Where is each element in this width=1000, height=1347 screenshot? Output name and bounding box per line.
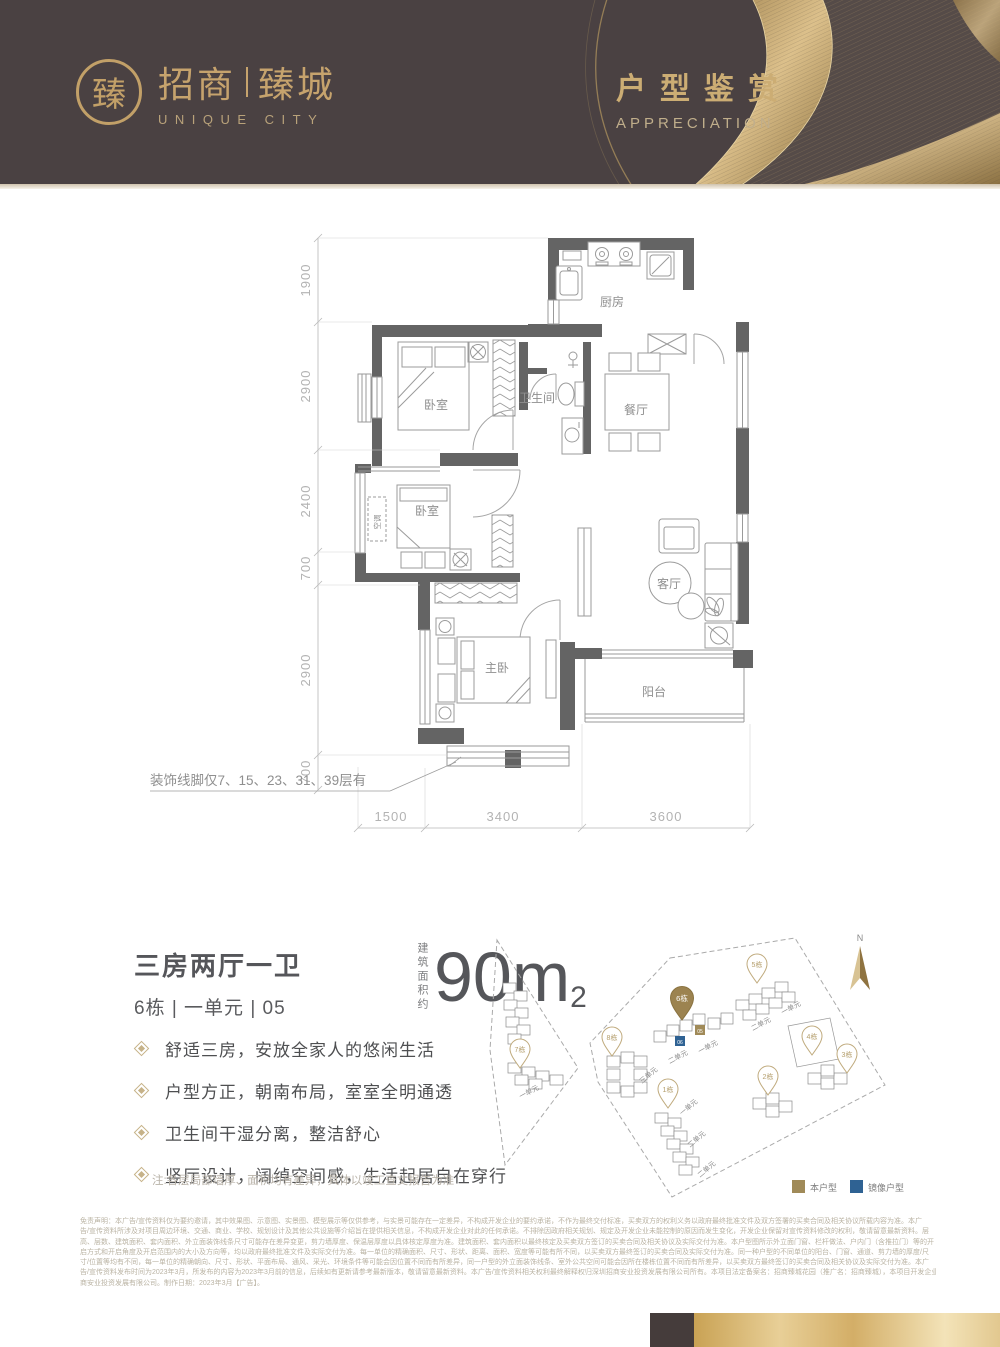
building-pin-8: 8栋 — [602, 1027, 622, 1056]
building-pin-1: 1栋 — [658, 1079, 678, 1108]
unit-label-1a: 一单元 — [677, 1097, 699, 1117]
room-label-ac: 空调 — [372, 515, 382, 530]
svg-text:3栋: 3栋 — [842, 1050, 853, 1059]
legend-this-label: 本户型 — [810, 1182, 837, 1193]
dim-left-3: 700 — [298, 556, 313, 581]
room-label-balcony: 阳台 — [642, 684, 666, 699]
unit-layout-title: 三房两厅一卫 — [134, 946, 302, 983]
svg-text:2栋: 2栋 — [763, 1072, 774, 1081]
brand-name-cn: 招商 臻城 — [158, 56, 336, 108]
unit-label-1b: 二单元 — [685, 1129, 707, 1149]
disclaimer-line: 告/宣传资料所涉及对项目周边环境、交通、商业、学校、规划设计及其他公共设施等介绍… — [80, 1227, 936, 1237]
dim-bottom-0: 1500 — [375, 809, 408, 824]
disclaimer-block: 免责声明：本广告/宣传资料仅为要约邀请，其中效果图、示意图、实景图、模型展示等仅… — [80, 1217, 936, 1289]
room-label-bedroom2: 卧室 — [415, 503, 439, 518]
molding-note-text: 装饰线脚仅7、15、23、31、39层有 — [150, 773, 366, 788]
site-plan: 06 05 7栋 8栋 6栋 5栋 4栋 — [478, 928, 956, 1218]
diamond-bullet-icon — [134, 1167, 150, 1183]
north-arrow-icon: N — [850, 933, 870, 990]
seal-character: 臻 — [92, 67, 126, 116]
footer-gold-bar — [694, 1313, 1000, 1347]
unit-note: 注:各层局部墙厚、面积均有差异，具体以竣工查丈报告为准 — [152, 1172, 454, 1188]
brand-name-en: UNIQUE CITY — [158, 112, 336, 127]
section-title-cn: 户型鉴赏 — [616, 64, 792, 108]
dim-left-2: 2400 — [298, 485, 313, 518]
room-label-dining: 餐厅 — [624, 402, 648, 417]
feature-item: 舒适三房，安放全家人的悠闲生活 — [136, 1036, 507, 1061]
disclaimer-line: 免责声明：本广告/宣传资料仅为要约邀请，其中效果图、示意图、实景图、模型展示等仅… — [80, 1217, 936, 1227]
room-label-kitchen: 厨房 — [600, 294, 624, 309]
brand-seal-icon: 臻 — [76, 59, 142, 125]
svg-text:1栋: 1栋 — [663, 1085, 674, 1094]
building-pin-5: 5栋 — [747, 954, 767, 983]
feature-item: 卫生间干湿分离，整洁舒心 — [136, 1120, 507, 1145]
dim-bottom-1: 3400 — [487, 809, 520, 824]
flyer-page: 臻 招商 臻城 UNIQUE CITY 户型鉴赏 APPRECIATION — [0, 0, 1000, 1347]
legend-this-swatch — [792, 1180, 805, 1193]
room-label-master: 主卧 — [485, 661, 509, 675]
site-plan-legend: 本户型 镜像户型 — [792, 1180, 904, 1193]
section-title: 户型鉴赏 APPRECIATION — [616, 64, 792, 132]
svg-text:6栋: 6栋 — [676, 993, 688, 1003]
floor-plan-drawing: 厨房 卫生间 餐厅 卧室 卧室 空调 客厅 主卧 阳台 — [0, 222, 1000, 852]
building-pin-6-highlighted: 6栋 — [671, 987, 694, 1021]
svg-text:5栋: 5栋 — [752, 960, 763, 969]
room-label-bath: 卫生间 — [519, 391, 555, 405]
mirror-unit-number: 06 — [677, 1040, 683, 1046]
this-unit-number: 05 — [697, 1029, 703, 1035]
unit-location-line: 6栋 | 一单元 | 05 — [134, 993, 302, 1020]
disclaimer-line: 启方式和开启角度及开启范围内的大小及方向等，均以政府最终批准文件及实际交付为准。… — [80, 1248, 936, 1258]
legend-mirror-label: 镜像户型 — [868, 1182, 904, 1193]
diamond-bullet-icon — [134, 1083, 150, 1099]
area-label: 建筑面积约 — [414, 942, 430, 1028]
header-bottom-edge — [0, 184, 1000, 189]
dim-left-4: 2900 — [298, 654, 313, 687]
unit-label-6b: 一单元 — [696, 1038, 719, 1056]
legend-mirror-swatch — [850, 1180, 863, 1193]
svg-text:8栋: 8栋 — [607, 1033, 618, 1042]
dim-left-1: 2900 — [298, 370, 313, 403]
diamond-bullet-icon — [134, 1125, 150, 1141]
building-pin-3: 3栋 — [837, 1044, 857, 1073]
disclaimer-line: 高、层数、建筑面积、套内面积、外立面装饰线条尺寸可能存在差异变更，剪力墙厚度、保… — [80, 1238, 936, 1248]
feature-item: 户型方正，朝南布局，室室全明通透 — [136, 1078, 507, 1103]
footer-dark-block — [650, 1313, 694, 1347]
unit-title-block: 三房两厅一卫 6栋 | 一单元 | 05 — [134, 946, 302, 1020]
disclaimer-line: 商安业投资发展有限公司。制作日期：2023年3月【广告】。 — [80, 1279, 936, 1289]
north-label: N — [857, 933, 864, 943]
section-title-en: APPRECIATION — [616, 115, 792, 132]
dim-bottom-2: 3600 — [650, 809, 683, 824]
dim-left-0: 1900 — [298, 264, 313, 297]
room-label-bedroom1: 卧室 — [424, 397, 448, 412]
disclaimer-line: 寸/位置等均有不同，每一单位的精确朝向、尺寸、形状、平面布局、通风、采光、环境条… — [80, 1258, 936, 1268]
unit-label-6a: 二单元 — [666, 1048, 689, 1066]
svg-text:4栋: 4栋 — [807, 1032, 818, 1041]
diamond-bullet-icon — [134, 1041, 150, 1057]
room-label-living: 客厅 — [657, 576, 681, 591]
svg-text:7栋: 7栋 — [515, 1045, 526, 1054]
disclaimer-line: 告/宣传资料发布时间为2023年3月，所发布的内容为2023年3月前的信息，后续… — [80, 1268, 936, 1278]
logo-divider — [246, 67, 248, 97]
building-pin-2: 2栋 — [758, 1066, 778, 1095]
header: 臻 招商 臻城 UNIQUE CITY 户型鉴赏 APPRECIATION — [0, 0, 1000, 184]
building-pin-4: 4栋 — [802, 1026, 822, 1055]
brand-logo: 臻 招商 臻城 UNIQUE CITY — [76, 56, 336, 127]
